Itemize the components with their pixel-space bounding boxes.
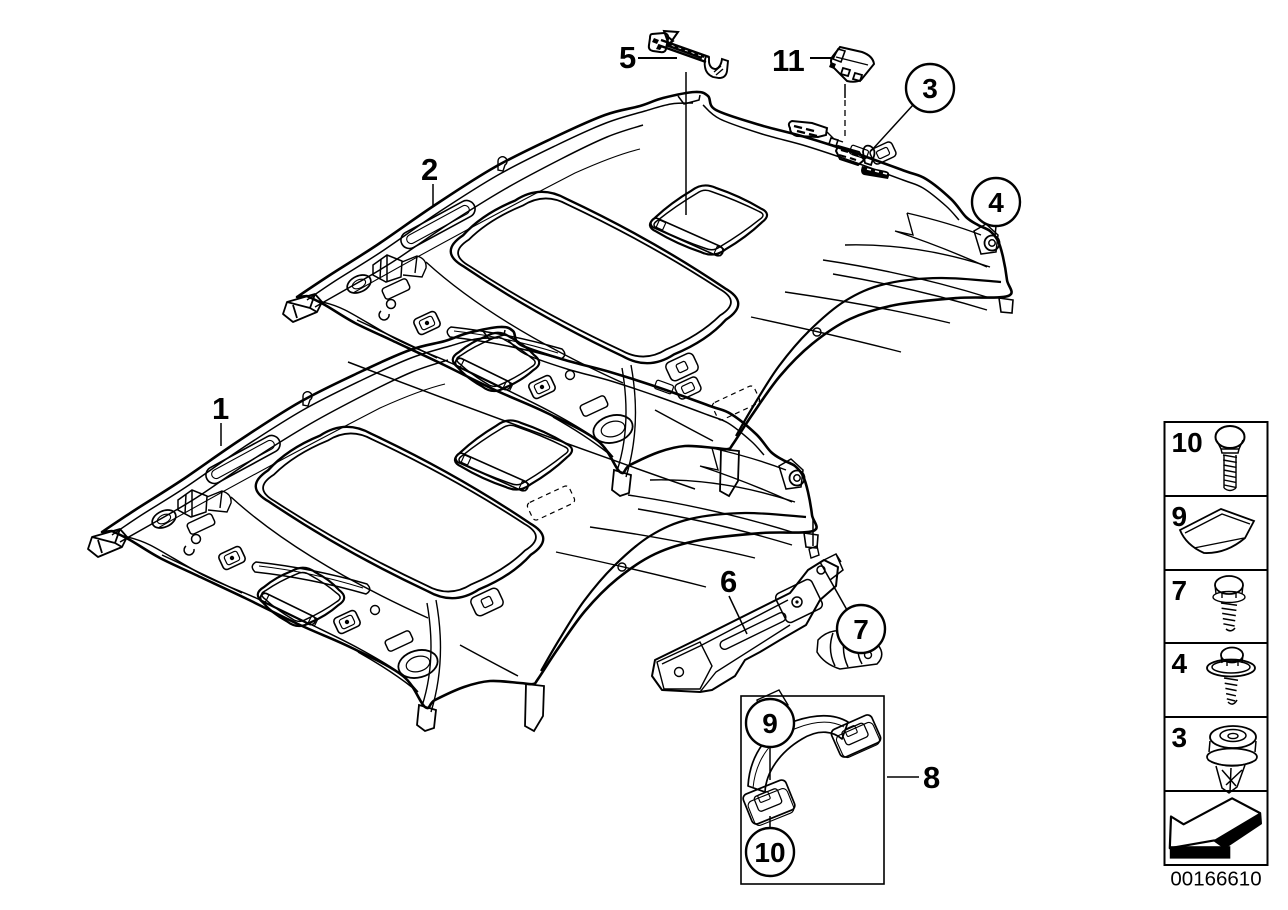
svg-text:10: 10 (754, 837, 785, 868)
svg-text:00166610: 00166610 (1170, 868, 1261, 891)
svg-text:2: 2 (421, 152, 438, 187)
svg-text:5: 5 (619, 40, 636, 75)
svg-text:4: 4 (988, 187, 1004, 218)
svg-text:10: 10 (1172, 427, 1203, 458)
svg-text:9: 9 (762, 708, 778, 739)
svg-text:8: 8 (923, 760, 940, 795)
svg-text:6: 6 (720, 564, 737, 599)
svg-text:3: 3 (1172, 722, 1188, 753)
svg-text:3: 3 (922, 73, 938, 104)
svg-text:7: 7 (1172, 575, 1188, 606)
svg-text:1: 1 (212, 391, 229, 426)
svg-text:7: 7 (853, 614, 869, 645)
svg-text:4: 4 (1172, 648, 1188, 679)
svg-text:11: 11 (772, 43, 805, 78)
